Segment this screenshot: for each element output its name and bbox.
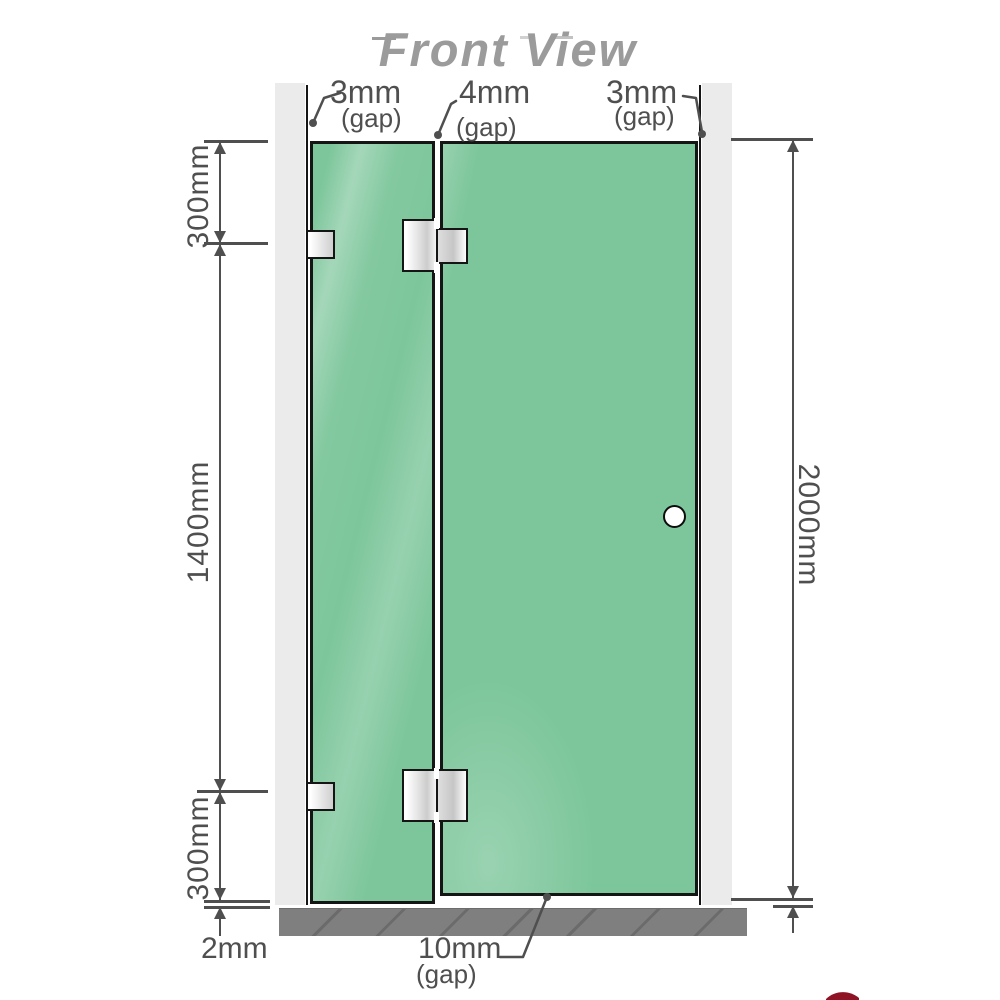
dim-arrow [214, 792, 226, 804]
dim-arrow [214, 779, 226, 791]
dim-arrow [214, 244, 226, 256]
hinge-gap-slot [434, 262, 439, 273]
dim-label-2000mm: 2000mm [793, 464, 823, 587]
dim-line-300mm-bottom [219, 791, 221, 901]
bottom-wall-bracket [306, 782, 335, 811]
dim-label-gap-suffix: (gap) [614, 103, 675, 129]
dim-label-300mm-top: 300mm [184, 143, 214, 248]
cropped-text-mark [372, 37, 396, 40]
cropped-text-mark [520, 36, 534, 39]
hinge-plate [436, 228, 468, 264]
top-wall-bracket [306, 230, 335, 259]
dim-line-bottom-gap-right [792, 916, 794, 933]
right-wall-channel-line [699, 85, 701, 905]
dim-label-2mm: 2mm [201, 934, 268, 964]
hinge-gap-slot [434, 768, 439, 779]
dim-arrow [214, 231, 226, 243]
bottom-hinge [402, 769, 468, 822]
dim-arrow [214, 907, 226, 919]
glass-door-panel [440, 141, 698, 896]
leader-line-gap-top-middle [438, 101, 456, 135]
dim-extension-line [731, 138, 813, 141]
door-handle-knob [663, 505, 686, 528]
dim-arrow [787, 140, 799, 152]
top-hinge [402, 219, 468, 272]
dim-arrow [787, 906, 799, 918]
cropped-logo-mark [826, 992, 859, 1000]
dim-extension-line [197, 790, 268, 793]
hinge-gap-slot [434, 218, 439, 229]
dim-arrow [214, 142, 226, 154]
dim-label-gap-suffix: (gap) [341, 105, 402, 131]
dim-label-300mm-bottom: 300mm [184, 795, 214, 900]
hinge-plate [402, 769, 438, 822]
dim-line-300mm-top [219, 143, 221, 243]
hinge-plate [402, 219, 438, 272]
dim-line-1400mm [219, 243, 221, 791]
dim-arrow [787, 886, 799, 898]
dim-label-gap-suffix: (gap) [416, 961, 477, 987]
dim-label-1400mm: 1400mm [184, 461, 214, 584]
right-wall-post [702, 83, 732, 905]
dim-label-gap-suffix: (gap) [456, 114, 517, 140]
floor-base [279, 908, 747, 936]
dim-extension-line [731, 898, 813, 901]
dim-arrow [214, 888, 226, 900]
dim-label-gap-top-middle: 4mm [459, 76, 530, 108]
hinge-plate [436, 769, 468, 822]
hinge-gap-slot [434, 812, 439, 823]
front-view-diagram: Front View 3 [0, 0, 1000, 1000]
left-wall-post [275, 83, 305, 905]
diagram-title: Front View [379, 22, 638, 77]
cropped-text-mark [550, 36, 573, 39]
